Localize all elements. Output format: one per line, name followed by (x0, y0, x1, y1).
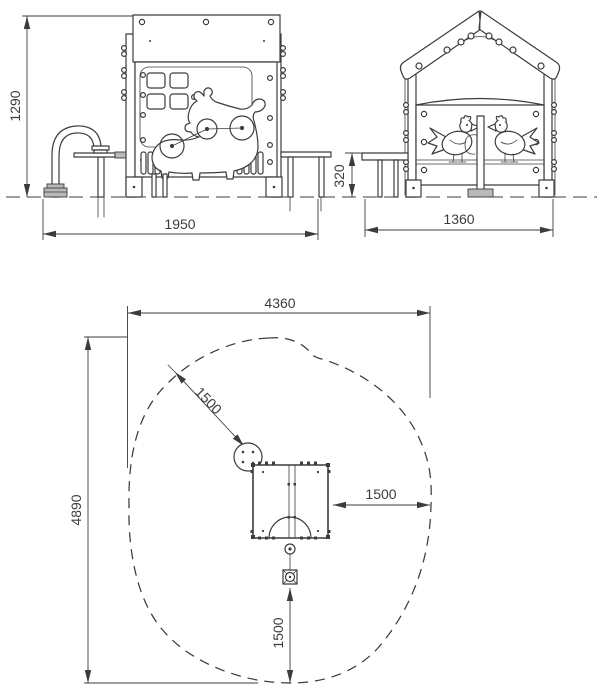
bench-leg (288, 157, 293, 197)
pump-arch-and-table (44, 126, 135, 217)
panel-top-curve (416, 99, 544, 106)
extension-tick (168, 365, 175, 372)
bench-leg (319, 157, 324, 197)
dim-label-side-width: 1360 (443, 211, 474, 227)
front-bench (281, 152, 331, 211)
dimension-side-width: 1360 (365, 199, 553, 237)
front-elevation-view: 1290 (7, 15, 331, 240)
dimension-clearance-bottom: 1500 (270, 588, 290, 683)
left-post (408, 62, 416, 197)
bench-seat (362, 153, 408, 160)
playhouse-front (122, 15, 286, 197)
footprint-rect (253, 465, 328, 538)
plan-view: 4360 4890 1500 (68, 295, 431, 683)
post-base-plate (468, 189, 493, 197)
right-post (544, 62, 552, 197)
dimension-clearance-diagonal: 1500 (168, 365, 244, 446)
technical-drawing-canvas: 1290 (0, 0, 600, 687)
dimension-plan-width: 4360 (128, 295, 431, 468)
dimension-front-height: 1290 (7, 16, 133, 197)
gable-roof-left-board (400, 11, 481, 79)
dimension-side-seat-height: 320 (331, 153, 362, 197)
gable-roof (400, 11, 559, 79)
dim-label-clearance-diagonal: 1500 (192, 384, 225, 418)
playground-dimension-drawing: 1290 (0, 0, 600, 687)
gable-roof-right-board (479, 11, 560, 79)
table-stem (98, 157, 104, 197)
dim-label-clearance-side: 1500 (365, 486, 396, 502)
dim-label-clearance-bottom: 1500 (270, 617, 286, 648)
dim-label-front-width: 1950 (164, 216, 195, 232)
bench-seat (281, 152, 331, 157)
dim-label-plan-depth: 4890 (68, 494, 84, 525)
bench-leg (378, 160, 382, 197)
dim-label-front-height: 1290 (7, 90, 23, 121)
table-top (74, 153, 115, 157)
side-elevation-view: 320 1360 (331, 11, 560, 237)
dimension-clearance-side: 1500 (333, 486, 430, 505)
dim-label-side-seat-height: 320 (331, 164, 347, 188)
side-bench (362, 153, 408, 197)
pump-flange (94, 150, 107, 153)
pump-base-plate (44, 188, 67, 197)
dim-label-plan-width: 4360 (264, 295, 295, 311)
post (477, 116, 484, 192)
equipment-footprint (251, 462, 331, 540)
dimension-front-width: 1950 (43, 199, 318, 240)
bench-leg (394, 160, 398, 197)
